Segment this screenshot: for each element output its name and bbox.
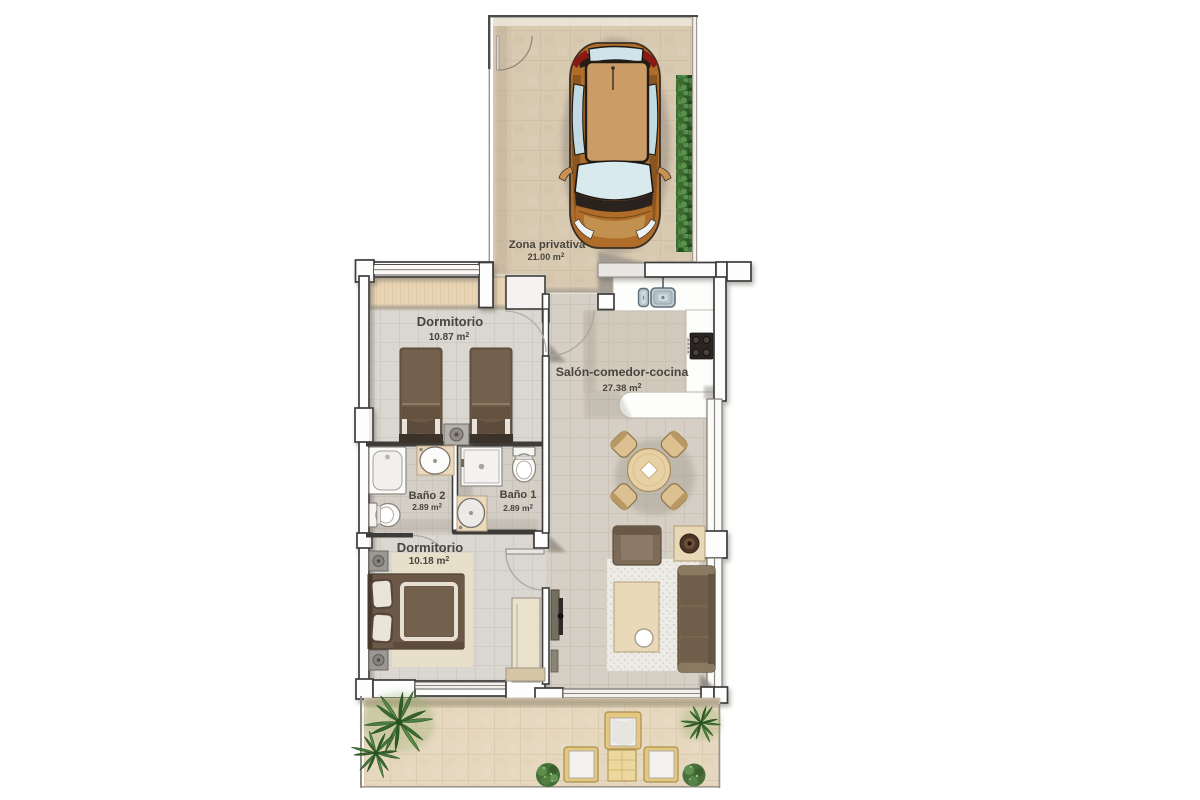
svg-text:10.87 m2: 10.87 m2 [429, 332, 470, 343]
svg-text:2.89 m2: 2.89 m2 [503, 503, 533, 513]
svg-text:Dormitorio: Dormitorio [397, 540, 464, 555]
svg-text:Baño 1: Baño 1 [500, 489, 537, 501]
svg-text:21.00 m2: 21.00 m2 [528, 252, 565, 262]
svg-text:Zona privativa: Zona privativa [509, 239, 586, 251]
svg-text:2.89 m2: 2.89 m2 [412, 502, 442, 512]
svg-text:10.18 m2: 10.18 m2 [409, 556, 450, 567]
svg-text:27.38 m2: 27.38 m2 [602, 383, 641, 394]
svg-text:Baño 2: Baño 2 [409, 490, 446, 502]
svg-text:Dormitorio: Dormitorio [417, 314, 484, 329]
svg-text:Salón-comedor-cocina: Salón-comedor-cocina [556, 365, 689, 379]
